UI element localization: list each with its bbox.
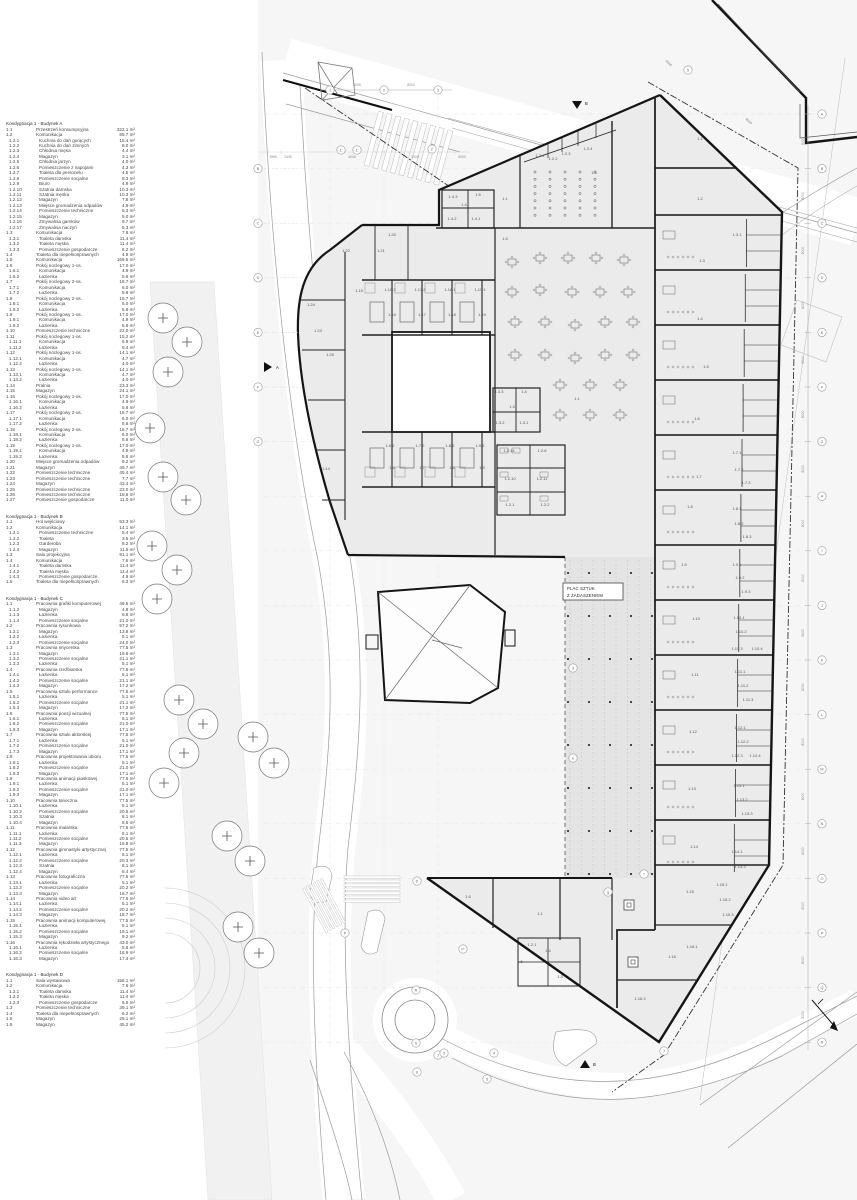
room-number-label: 1.18.1 [444,287,456,292]
room-number-label: 1.22 [342,248,351,253]
room-number-label: 1.8 [449,465,455,470]
room-number-label: 1.9.2 [476,443,486,448]
column-icon [630,744,632,746]
room-number-label: 1.6.2 [386,443,396,448]
room-number-label: 1.2 [697,196,703,201]
room-number-label: 1.7 [419,465,425,470]
crosswalk-stripe [344,884,400,886]
legend-row: 1.16.3 Magazyn 17.4 m² [6,956,135,961]
column-icon [588,787,590,789]
reference-marker: S [415,1041,418,1045]
room-number-label: 1.1 [697,136,703,141]
dimension-label: 6000 [458,155,466,159]
reference-marker: 1' [340,148,343,152]
column-icon [567,658,569,660]
plaza-label: PLAC SZTUK Z ZADASZENIEM [563,583,623,600]
legend-section: Kondygnacja 1 - Budynek D 1.1 Sala wysta… [6,972,135,1027]
room-number-label: 1.3 [509,404,515,409]
legend-section: Kondygnacja 1 - Budynek B 1.1 Hol wejści… [6,514,135,585]
column-icon [567,787,569,789]
grid-number: 3 [437,88,439,92]
crosswalk-stripe [344,896,400,898]
grid-letter: J [821,604,823,608]
room-number-label: 1.12.1 [734,725,746,730]
room-number-label: 1.15 [686,889,695,894]
room-number-label: 1.8.2 [446,443,456,448]
room-number-label: 1.4.2 [448,216,458,221]
room-number-label: 1.13.3 [741,811,753,816]
dimension-label: 8000 [801,629,805,637]
room-number-label: 1.16.1 [686,944,698,949]
reference-marker: 7 [663,1049,665,1053]
room-number-label: 1.3.2 [496,420,506,425]
room-number-label: 1.14 [690,844,699,849]
dimension-label: 8000 [801,793,805,801]
dimension-label: 8000 [407,83,415,87]
room-number-label: 1.10.2 [735,629,747,634]
column-icon [630,615,632,617]
grid-letter: Q [821,986,824,990]
room-number-label: 1.12.3 [731,753,743,758]
room-number-label: 1.15.3 [722,912,734,917]
reference-marker: 4 [493,1051,495,1055]
section-cut-label: A [276,365,279,370]
reference-marker: 6 [416,1070,418,1074]
column-icon [609,787,611,789]
room-number-label: 1.2.2 [549,156,559,161]
room-number: 1.5 [6,579,36,584]
room-number-label: 1.2.2 [541,502,551,507]
column-icon [609,615,611,617]
room-number-label: 1.7 [696,474,702,479]
room-number-label: 1.16.3 [634,996,646,1001]
grid-letter: E [257,331,260,335]
room-number-label: 1.2.6 [538,448,548,453]
column-icon [567,830,569,832]
grid-letter: G [821,440,824,444]
room-number-label: 1.19 [478,312,487,317]
room-number-label: 1.1 [537,911,543,916]
room-number-label: 1.5 [517,959,523,964]
dimension-label: 8000 [801,301,805,309]
column-icon [588,572,590,574]
room-number-label: 1.18 [448,312,457,317]
column-icon [609,830,611,832]
column-icon [630,787,632,789]
pavilion-building [366,585,515,703]
grid-letter: D [257,276,260,280]
grid-letter: E [821,331,824,335]
column-icon [588,658,590,660]
room-number-label: 1.4 [521,389,527,394]
plaza-label-line1: PLAC SZTUK [567,586,595,591]
column-icon [651,873,653,875]
room-number-label: 1.5 [475,192,481,197]
dimension-label: 8000 [801,683,805,691]
room-number-label: 1.3.3 [495,389,505,394]
dimension-label: 2000 [411,155,419,159]
plaza-label-line2: Z ZADASZENIEM [567,593,603,598]
room-number-label: 1.14.3 [734,864,746,869]
room-number-label: 1.16 [388,312,397,317]
reference-marker: 5 [687,68,689,72]
room-number-label: 1.4 [697,316,703,321]
reference-marker: P [344,931,347,935]
column-icon [609,572,611,574]
legend-section: Kondygnacja 1 - Budynek C 1.1 Pracownia … [6,596,135,962]
room-number-label: 1.19.1 [474,287,486,292]
room-number-label: 1.2.10 [504,476,516,481]
crosswalk-stripe [344,900,400,902]
grid-letter: R [821,1041,824,1045]
column-icon [567,572,569,574]
dimension-label: 8000 [801,137,805,145]
room-number-label: 1.4.3 [449,194,459,199]
reference-marker: 3 [443,1051,445,1055]
room-number-label: 1.7.3 [742,480,752,485]
room-number-label: 1.9.1 [733,562,743,567]
room-number-label: 1.7.2 [735,467,745,472]
column-icon [588,744,590,746]
courtyard [392,332,490,432]
room-number-label: 1.11.1 [735,669,747,674]
grid-letter: I [821,549,822,553]
reference-marker: 2' [431,147,434,151]
column-icon [651,572,653,574]
section-cut-label: B [585,101,588,106]
room-number-label: 1.25 [326,352,335,357]
legend-section: Kondygnacja 1 - Budynek A 1.1 Przestrzeń… [6,121,135,503]
dimension-label: 8000 [801,520,805,528]
room-number-label: 1.10.3 [731,646,743,651]
column-icon [567,744,569,746]
room-number-label: 1.8 [687,504,693,509]
room-number-label: 1.17.2 [414,287,426,292]
dimension-label: 8000 [801,574,805,582]
room-number-label: 1.2.1 [536,153,546,158]
reference-marker: 1' [356,148,359,152]
column-icon [567,873,569,875]
room-number-label: 1.17 [418,312,427,317]
legend-row: 1.5 Toaleta dla niepełnosprawnych 6.3 m² [6,579,135,584]
legend-row: 1.6 Magazyn 45.2 m² [6,1022,135,1027]
room-number-label: 1.4 [545,948,551,953]
room-number-label: 1.16 [668,954,677,959]
room-number-label: 1.9.2 [736,575,746,580]
room-number-label: 1.10 [692,616,701,621]
room-number-label: 1.14 [322,466,331,471]
room-number-label: 1.12.4 [749,753,761,758]
reference-marker: d [572,666,574,670]
room-number-label: 1.4.1 [472,216,482,221]
room-number-label: 1.15.2 [719,897,731,902]
dimension-label: 2435 [284,155,292,159]
room-number-label: 1.5 [703,364,709,369]
grid-letter: K [821,658,824,662]
column-icon [609,873,611,875]
room-number-label: 1.1 [502,196,508,201]
column-icon [567,615,569,617]
room-area: 45.2 m² [119,1022,135,1027]
grid-letter: L [821,713,823,717]
dimension-label: 8000 [801,1011,805,1019]
plaza-floor [565,557,655,878]
dimension-label: 8000 [801,738,805,746]
room-number-label: 1.2.4 [584,146,594,151]
room-number: 1.27 [6,497,36,502]
grid-letter: B [821,167,824,171]
grid-letter: C [257,222,260,226]
room-number-label: 1.2.1 [528,942,538,947]
room-schedule-legend: Kondygnacja 1 - Budynek A 1.1 Przestrzeń… [6,121,135,1038]
column-icon [651,744,653,746]
column-icon [651,830,653,832]
dimension-label: 8000 [801,902,805,910]
crosswalk-stripe [344,876,400,878]
grid-number: 2 [383,88,385,92]
column-icon [609,744,611,746]
room-number-label: 1.3.1 [520,420,530,425]
grid-letter: C [821,222,824,226]
room-number-label: 1.1 [574,396,580,401]
pavilion-outline [378,585,505,703]
room-number-label: 1.9 [479,465,485,470]
room-number-label: 1.13.1 [733,783,745,788]
column-icon [588,830,590,832]
room-number-label: 1.2.14 [503,448,515,453]
room-number-label: 1.9.3 [742,589,752,594]
room-number-label: 1.11.3 [743,697,755,702]
legend-row: 1.27 Pomieszczenie gospodarcze 11.0 m² [6,497,135,502]
column-icon [630,572,632,574]
room-number-label: 1.3 [591,170,597,175]
room-number-label: 1.2.1 [506,502,516,507]
room-number-label: 1.13.2 [736,797,748,802]
reference-marker: 5 [486,1077,488,1081]
reference-marker: g [607,890,609,894]
column-icon [630,873,632,875]
dimension-label: 8000 [801,410,805,418]
room-number-label: 1.4 [461,202,467,207]
grid-letter: N [821,822,824,826]
room-number: 1.6 [6,1022,36,1027]
crosswalk-stripe [344,880,400,882]
room-number-label: 1.3 [699,258,705,263]
room-name: Toaleta dla niepełnosprawnych [36,579,122,584]
reference-marker: D [416,879,419,883]
room-number-label: 1.12 [689,729,698,734]
room-number-label: 1.7.1 [733,450,743,455]
column-icon [630,658,632,660]
room-number-label: 1.7.2 [416,443,426,448]
grid-letter: D [821,276,824,280]
column-icon [588,873,590,875]
room-number-label: 1.5 [502,236,508,241]
room-number-label: 1.23 [314,328,323,333]
dimension-label: 8000 [801,356,805,364]
room-number-label: 1.11.2 [738,683,750,688]
dimension-label: 8000 [801,956,805,964]
room-number-label: 1.6 [389,465,395,470]
column-icon [651,658,653,660]
dimension-label: 8000 [801,847,805,855]
room-number-label: 1.24 [307,302,316,307]
room-number-label: 1.9 [681,562,687,567]
room-number-label: 1.6 [465,894,471,899]
column-icon [651,701,653,703]
room-name: Pomieszczenie gospodarcze [36,497,120,502]
room-number-label: 1.2.3 [562,151,572,156]
room-number-label: 1.20 [388,232,397,237]
reference-marker: P' [461,947,465,951]
roundabout-center [395,1000,435,1040]
dimension-label: 8000 [353,83,361,87]
dimension-label: 8000 [801,247,805,255]
room-number-label: 1.10.1 [733,615,745,620]
room-number-label: 1.15.1 [716,882,728,887]
room-number-label: 1.13 [688,786,697,791]
reference-marker: J [437,1053,439,1057]
grid-number: 1 [329,88,331,92]
crosswalk-stripe [344,888,400,890]
column-icon [628,957,638,967]
room-number-label: 1.8.2 [735,521,745,526]
room-area: 17.4 m² [119,956,135,961]
column-icon [630,830,632,832]
grid-letter: G [257,440,260,444]
grid-letter: P [821,931,824,935]
grid-letter: O [821,877,824,881]
room-number-label: 1.8.3 [743,534,753,539]
room-number-label: 1.10.4 [751,646,763,651]
dimension-label: 8000 [801,465,805,473]
dimension-label: 4000 [348,155,356,159]
room-number-label: 1.6 [694,416,700,421]
room-number-label: 1.8.1 [733,506,743,511]
room-number-label: 1.12.2 [737,739,749,744]
column-icon [588,615,590,617]
room-name: Magazyn [36,1022,119,1027]
room-number-label: 1.3 [557,974,563,979]
column-icon [651,787,653,789]
column-icon [609,658,611,660]
room-area: 11.0 m² [120,497,135,502]
column-icon [630,701,632,703]
crosswalk [344,876,400,902]
floor-plan-sheet: A8000B8000C8000D8000E8000F8000G8000H8000… [0,0,857,1200]
column-icon [609,701,611,703]
room-name: Magazyn [39,956,119,961]
grid-letter: A [821,112,824,116]
column-icon [624,900,634,910]
reference-marker: R [415,988,418,992]
column-icon [567,701,569,703]
room-number-label: 1.21 [377,248,386,253]
room-area: 6.3 m² [122,579,135,584]
dimension-label: 8000 [801,192,805,200]
dimension-label: 1560 [269,155,277,159]
room-number-label: 1.2.11 [537,476,549,481]
crosswalk-stripe [344,892,400,894]
room-number-label: 1.3.1 [733,232,743,237]
grid-letter: B [257,167,260,171]
reference-marker: e [572,756,574,760]
room-number: 1.16.3 [6,956,39,961]
section-cut-label: B [593,1062,596,1067]
grid-letter: M [820,768,823,772]
room-number-label: 1.16.2 [384,287,396,292]
grid-letter: H [821,495,824,499]
room-number-label: 1.15 [355,288,364,293]
column-icon [651,615,653,617]
room-number-label: 1.14.1 [731,849,743,854]
column-icon [588,701,590,703]
room-number-label: 1.11 [691,672,699,677]
